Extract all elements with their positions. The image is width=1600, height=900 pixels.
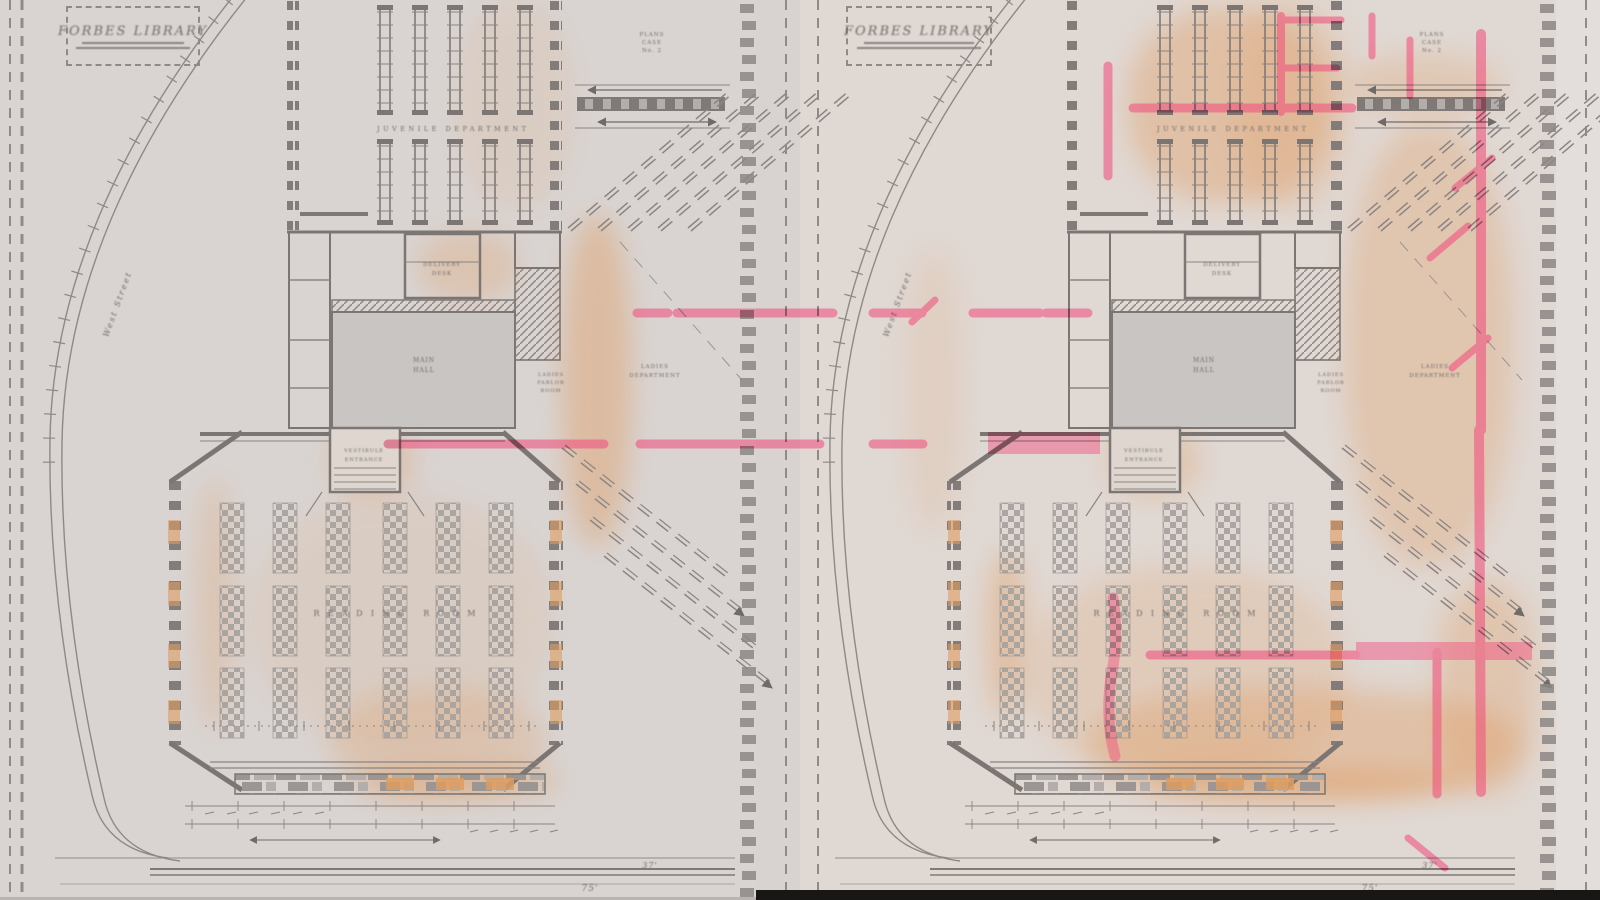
west-pier-orange — [948, 644, 960, 668]
perforation-strip — [1542, 701, 1556, 710]
stack-end-cap — [377, 220, 393, 225]
south-window-orange — [486, 778, 514, 790]
dim-scribble — [227, 812, 236, 814]
title-box-left: FORBES LIBRARY — [66, 6, 200, 66]
perforation-strip — [1542, 157, 1556, 166]
parlor-label: ROOM — [540, 388, 561, 394]
hall-label: HALL — [1193, 367, 1215, 374]
department-label: LADIES — [1421, 364, 1449, 370]
south-window-orange — [436, 778, 464, 790]
perforation-strip — [740, 616, 754, 625]
perforation-strip — [740, 412, 754, 421]
perforation-strip — [740, 650, 754, 659]
perforation-strip — [740, 276, 754, 285]
step-flare — [408, 492, 424, 516]
perforation-strip — [1540, 344, 1554, 353]
perforation-strip — [1542, 293, 1556, 302]
walk-diagonal — [1373, 517, 1541, 649]
perforation-strip — [1542, 837, 1556, 846]
perforation-strip — [1542, 55, 1556, 64]
stack-end-cap — [1192, 5, 1208, 10]
perforation-strip — [740, 752, 754, 761]
perforation-strip — [1540, 752, 1554, 761]
perforation-strip — [740, 582, 754, 591]
stack-end-cap — [412, 5, 428, 10]
parlor-label: LADIES — [538, 372, 564, 378]
dim-scribble — [271, 812, 280, 814]
perforation-strip — [740, 820, 754, 829]
west-pier-orange — [168, 644, 180, 668]
reading-table — [1000, 586, 1024, 656]
perforation-strip — [740, 548, 754, 557]
stack-end-cap — [447, 110, 463, 115]
reading-table — [326, 503, 350, 573]
porch-band — [577, 97, 725, 111]
perforation-strip — [1540, 174, 1554, 183]
perforation-strip — [740, 4, 754, 13]
reading-table — [1163, 503, 1187, 573]
reading-table — [436, 586, 460, 656]
parlor-label: LADIES — [1318, 372, 1344, 378]
walk-diagonal — [1356, 484, 1524, 616]
perforation-strip — [742, 837, 756, 846]
perforation-strip — [1542, 803, 1556, 812]
stack-end-cap — [517, 139, 533, 144]
west-pier-orange — [948, 520, 960, 544]
reading-table — [1163, 586, 1187, 656]
red-markup-line — [1430, 226, 1468, 258]
perforation-strip — [1540, 786, 1554, 795]
porch-band-gap — [1419, 99, 1427, 109]
reading-table — [1269, 503, 1293, 573]
hall-north-wall — [332, 300, 515, 312]
perforation-strip — [1542, 191, 1556, 200]
stack-end-cap — [1227, 139, 1243, 144]
department-label: LADIES — [641, 364, 669, 370]
stamp-text: PLANS — [1420, 32, 1445, 38]
stack-end-cap — [1157, 5, 1173, 10]
perforation-strip — [1540, 684, 1554, 693]
perforation-strip — [742, 531, 756, 540]
drive-hatch-tick — [826, 390, 838, 391]
perforation-strip — [1540, 446, 1554, 455]
reading-table — [489, 586, 513, 656]
perforation-strip — [740, 378, 754, 387]
dim-scribble — [1310, 830, 1318, 832]
reading-table — [1000, 503, 1024, 573]
perforation-strip — [740, 174, 754, 183]
walk-diagonal — [576, 484, 744, 616]
west-pier-orange — [168, 582, 180, 606]
dim-scribble — [530, 830, 538, 832]
walk-diagonal — [1384, 556, 1552, 688]
stack-end-cap — [447, 139, 463, 144]
stack-end-cap — [1262, 139, 1278, 144]
dim-scribble — [1073, 812, 1082, 814]
red-markup-line — [1479, 430, 1481, 792]
south-window-orange — [1216, 778, 1244, 790]
perforation-strip — [740, 786, 754, 795]
perforation-strip — [742, 157, 756, 166]
perforation-strip — [1540, 38, 1554, 47]
porch-band-gap — [621, 99, 629, 109]
perforation-strip — [1540, 480, 1554, 489]
floor-plan-ink-layer: JUVENILE DEPARTMENTDELIVERYDESKMAINHALLL… — [0, 0, 1600, 900]
east-pier-orange — [550, 700, 562, 724]
chamfer-SW — [170, 743, 242, 790]
stamp-text: CASE — [642, 40, 662, 46]
vestibule-label: ENTRANCE — [345, 457, 384, 463]
walk-diagonal — [590, 520, 758, 652]
perforation-strip — [1540, 650, 1554, 659]
stack-end-cap — [377, 110, 393, 115]
porch-band-gap — [693, 99, 701, 109]
walk-diagonal — [1370, 520, 1538, 652]
step-flare — [306, 492, 322, 516]
stack-end-cap — [517, 220, 533, 225]
perforation-strip — [1542, 395, 1556, 404]
perforation-strip — [1542, 361, 1556, 370]
west-wing — [1069, 232, 1110, 428]
east-pier-orange — [1330, 582, 1342, 606]
stack-end-cap — [447, 220, 463, 225]
dim-scribble — [1007, 812, 1016, 814]
red-wall-highlight — [988, 432, 1100, 454]
curved-drive — [830, 0, 1015, 858]
reading-table — [1216, 586, 1240, 656]
stack-room-label: JUVENILE DEPARTMENT — [1156, 125, 1307, 133]
perforation-strip — [1542, 89, 1556, 98]
porch-band-gap — [1365, 99, 1373, 109]
perforation-strip — [740, 38, 754, 47]
porch-band-gap — [657, 99, 665, 109]
perforation-strip — [740, 344, 754, 353]
perforation-strip — [742, 395, 756, 404]
stack-end-cap — [1157, 220, 1173, 225]
stack-end-cap — [412, 110, 428, 115]
stack-end-cap — [482, 139, 498, 144]
east-pier-orange — [550, 644, 562, 668]
chamfer-NE — [1283, 432, 1340, 482]
walk-diagonal — [579, 481, 747, 613]
stamp-text: PLANS — [640, 32, 665, 38]
perforation-strip — [1542, 259, 1556, 268]
east-pier-orange — [550, 582, 562, 606]
reading-table — [1269, 586, 1293, 656]
stack-end-cap — [517, 110, 533, 115]
perforation-strip — [742, 871, 756, 880]
reading-table — [273, 503, 297, 573]
perforation-strip — [1540, 548, 1554, 557]
perforation-strip — [740, 140, 754, 149]
stack-end-cap — [517, 5, 533, 10]
west-wing — [289, 232, 330, 428]
perforation-strip — [1542, 225, 1556, 234]
stack-end-cap — [482, 220, 498, 225]
reading-table — [326, 586, 350, 656]
walk-diagonal — [1342, 448, 1510, 580]
west-pier-orange — [948, 700, 960, 724]
curved-drive — [50, 0, 235, 858]
perforation-strip — [1542, 429, 1556, 438]
stamp-text: CASE — [1422, 40, 1442, 46]
step-flare — [1188, 492, 1204, 516]
perforation-strip — [1542, 531, 1556, 540]
reading-table — [1053, 586, 1077, 656]
perforation-strip — [1542, 123, 1556, 132]
perforation-strip — [742, 123, 756, 132]
title-left-text: FORBES LIBRARY — [58, 24, 208, 39]
dim-scribble — [1290, 830, 1298, 832]
dim-scribble — [550, 830, 558, 832]
road-dim-handwriting: 75' — [582, 884, 599, 894]
step-flare — [1086, 492, 1102, 516]
chamfer-SW — [950, 743, 1022, 790]
perforation-strip — [742, 633, 756, 642]
perforation-strip — [1540, 140, 1554, 149]
perforation-strip — [1540, 72, 1554, 81]
stack-end-cap — [1297, 139, 1313, 144]
stack-end-cap — [482, 110, 498, 115]
perforation-strip — [740, 514, 754, 523]
perforation-strip — [1540, 854, 1554, 863]
walk-diagonal — [691, 93, 853, 231]
perforation-strip — [740, 718, 754, 727]
perforation-strip — [740, 106, 754, 115]
title-right-text: FORBES LIBRARY — [844, 24, 994, 39]
reading-table — [273, 586, 297, 656]
perforation-strip — [742, 667, 756, 676]
drive-hatch-tick — [824, 414, 836, 415]
dim-scribble — [1029, 812, 1038, 814]
stack-end-cap — [1192, 220, 1208, 225]
stack-room-west-wall — [287, 0, 299, 234]
department-label: DEPARTMENT — [629, 373, 680, 379]
stack-end-cap — [1297, 5, 1313, 10]
stack-end-cap — [412, 220, 428, 225]
drive-hatch-tick — [53, 342, 65, 344]
perforation-strip — [1542, 735, 1556, 744]
road-dim-handwriting: 37' — [642, 861, 657, 870]
perforation-strip — [740, 854, 754, 863]
perforation-strip — [1542, 599, 1556, 608]
east-room — [1295, 232, 1340, 268]
parlor-label: PARLOR — [1317, 380, 1344, 386]
walk-diagonal — [1359, 481, 1527, 613]
perforation-strip — [1540, 378, 1554, 387]
porch-band-gap — [1455, 99, 1463, 109]
perforation-strip — [1542, 769, 1556, 778]
perforation-strip — [1540, 820, 1554, 829]
reading-table — [1106, 503, 1130, 573]
stack-end-cap — [1192, 139, 1208, 144]
perforation-strip — [1540, 718, 1554, 727]
perforation-strip — [742, 361, 756, 370]
scanned-drawing-sheet: JUVENILE DEPARTMENTDELIVERYDESKMAINHALLL… — [0, 0, 1600, 900]
perforation-strip — [742, 497, 756, 506]
perforation-strip — [1542, 871, 1556, 880]
title-underline — [864, 42, 975, 44]
stack-end-cap — [1262, 220, 1278, 225]
stair-hatch — [515, 268, 560, 360]
stack-end-cap — [1227, 220, 1243, 225]
title-underline — [82, 42, 183, 44]
perforation-strip — [742, 21, 756, 30]
porch-band-gap — [1401, 99, 1409, 109]
perforation-strip — [742, 565, 756, 574]
reading-table — [383, 586, 407, 656]
department-label: DEPARTMENT — [1409, 373, 1460, 379]
title-underline — [76, 47, 190, 49]
walk-diagonal — [631, 93, 793, 231]
perforation-strip — [1540, 412, 1554, 421]
title-underline — [857, 47, 982, 49]
stair-hatch — [1295, 268, 1340, 360]
perforation-strip — [1542, 667, 1556, 676]
stack-end-cap — [412, 139, 428, 144]
perforation-strip — [742, 259, 756, 268]
walk-diagonal — [593, 517, 761, 649]
dim-scribble — [470, 830, 478, 832]
perforation-strip — [742, 429, 756, 438]
east-pier-orange — [1330, 520, 1342, 544]
west-pier-orange — [948, 582, 960, 606]
parlor-label: PARLOR — [537, 380, 564, 386]
stack-room-west-wall — [1067, 0, 1079, 234]
perforation-strip — [1542, 327, 1556, 336]
dim-scribble — [1250, 830, 1258, 832]
perforation-strip — [742, 225, 756, 234]
reading-table — [436, 668, 460, 738]
delivery-room-label: DESK — [432, 271, 452, 277]
porch-band-gap — [603, 99, 611, 109]
perforation-strip — [1540, 616, 1554, 625]
reading-table — [220, 668, 244, 738]
perforation-strip — [740, 684, 754, 693]
perforation-strip — [740, 480, 754, 489]
porch-band-gap — [639, 99, 647, 109]
perforation-strip — [742, 293, 756, 302]
east-pier-orange — [1330, 700, 1342, 724]
delivery-room-label: DESK — [1212, 271, 1232, 277]
stack-end-cap — [447, 5, 463, 10]
hall-north-wall — [1112, 300, 1295, 312]
walk-diagonal — [1381, 93, 1543, 231]
reading-table — [436, 503, 460, 573]
perforation-strip — [742, 191, 756, 200]
drive-hatch-tick — [833, 342, 845, 344]
drive-hatch-tick — [49, 365, 61, 367]
perforation-strip — [742, 803, 756, 812]
porch-band-gap — [1437, 99, 1445, 109]
west-pier-orange — [168, 700, 180, 724]
perforation-strip — [1540, 514, 1554, 523]
reading-table — [1163, 668, 1187, 738]
hall-label: HALL — [413, 367, 435, 374]
dim-scribble — [985, 812, 994, 814]
stack-end-cap — [377, 139, 393, 144]
perforation-strip — [1540, 208, 1554, 217]
perforation-strip — [742, 55, 756, 64]
curved-drive — [842, 0, 1027, 861]
vestibule-label: VESTIBULE — [1123, 448, 1164, 454]
perforation-strip — [742, 599, 756, 608]
stack-end-cap — [482, 5, 498, 10]
delivery-room-label: DELIVERY — [1203, 262, 1241, 268]
east-pier-orange — [550, 520, 562, 544]
hall-label: MAIN — [413, 357, 435, 364]
reading-table — [489, 503, 513, 573]
dim-scribble — [1051, 812, 1060, 814]
title-box-right: FORBES LIBRARY — [846, 6, 992, 66]
dim-scribble — [1270, 830, 1278, 832]
perforation-strip — [742, 327, 756, 336]
perforation-strip — [742, 463, 756, 472]
perforation-strip — [1540, 310, 1554, 319]
reading-table — [1216, 668, 1240, 738]
stack-end-cap — [377, 5, 393, 10]
porch-band-gap — [675, 99, 683, 109]
south-window-orange — [1166, 778, 1194, 790]
reading-table — [220, 503, 244, 573]
perforation-strip — [740, 72, 754, 81]
stack-end-cap — [1227, 5, 1243, 10]
perforation-strip — [1540, 582, 1554, 591]
road-label: West Street — [882, 270, 914, 338]
curved-drive — [62, 0, 247, 861]
photo-edge-black-bar — [756, 890, 1600, 900]
dim-scribble — [205, 812, 214, 814]
red-wall-highlight — [1356, 642, 1532, 660]
south-window-orange — [1266, 778, 1294, 790]
reading-table — [489, 668, 513, 738]
dim-scribble — [315, 812, 324, 814]
vestibule-label: VESTIBULE — [343, 448, 384, 454]
perforation-strip — [1542, 497, 1556, 506]
dim-scribble — [490, 830, 498, 832]
west-pier-orange — [168, 520, 180, 544]
perforation-strip — [1542, 21, 1556, 30]
perforation-strip — [740, 242, 754, 251]
dim-scribble — [510, 830, 518, 832]
walk-diagonal — [1441, 93, 1600, 231]
road-label: West Street — [102, 270, 134, 338]
perforation-strip — [742, 701, 756, 710]
stack-end-cap — [1297, 220, 1313, 225]
perforation-strip — [1540, 4, 1554, 13]
perforation-strip — [1540, 106, 1554, 115]
walk-diagonal — [1387, 553, 1555, 685]
chamfer-NW — [170, 432, 242, 482]
reading-table — [220, 586, 244, 656]
stack-room-east-wall — [550, 0, 562, 234]
reading-table — [1000, 668, 1024, 738]
reading-table — [326, 668, 350, 738]
dim-scribble — [1095, 812, 1104, 814]
stamp-text: No. 2 — [642, 48, 662, 54]
drive-hatch-tick — [46, 390, 58, 391]
dim-scribble — [249, 812, 258, 814]
reading-table — [383, 503, 407, 573]
perforation-strip — [1542, 633, 1556, 642]
perforation-strip — [742, 89, 756, 98]
reading-table — [273, 668, 297, 738]
perforation-strip — [742, 769, 756, 778]
perforation-strip — [740, 208, 754, 217]
perforation-strip — [1542, 463, 1556, 472]
perforation-strip — [740, 888, 754, 897]
walk-diagonal — [562, 448, 730, 580]
